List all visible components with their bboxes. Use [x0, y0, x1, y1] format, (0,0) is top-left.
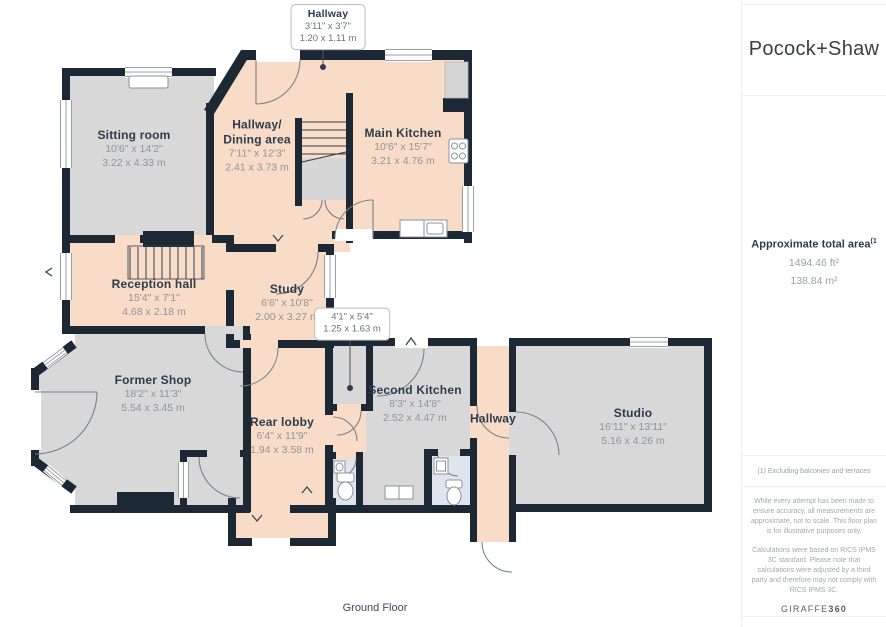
area-footnote: (1) Excluding balconies and terraces	[742, 455, 886, 487]
arrow-left-icon	[46, 268, 52, 276]
sitting-room-floor	[68, 74, 214, 238]
brand-logo-section: Pocock+Shaw	[742, 4, 886, 96]
stair-landing	[302, 158, 346, 200]
kitchen-sink-icon	[400, 220, 447, 237]
reception-hall-floor	[65, 238, 233, 334]
disclaimer-section: While every attempt has been made to ens…	[742, 487, 886, 617]
total-area-section: Approximate total area(1 1494.46 ft² 138…	[742, 238, 886, 287]
total-area-title: Approximate total area(1	[742, 238, 886, 251]
floorplan-area: Sitting room 10'6" x 14'2" 3.22 x 4.33 m…	[0, 0, 740, 627]
info-sidebar: Pocock+Shaw Approximate total area(1 149…	[741, 0, 886, 627]
toilet-icon	[446, 480, 462, 505]
window-seat	[129, 76, 168, 88]
disclaimer-text-2: Calculations were based on RICS IPMS 3C …	[750, 546, 878, 597]
leader-dot	[347, 385, 353, 391]
studio-floor	[516, 346, 705, 505]
total-area-sqm: 138.84 m²	[742, 275, 886, 287]
toilet-icon	[337, 473, 354, 500]
hob-icon	[449, 139, 468, 163]
footnote-marker: (1	[870, 238, 876, 245]
sink-icon	[334, 461, 345, 473]
disclaimer-text-1: While every attempt has been made to ens…	[750, 497, 878, 538]
hallway-strip-floor	[477, 346, 509, 542]
callout-hallway: Hallway 3'11" x 3'7" 1.20 x 1.11 m	[291, 4, 366, 50]
kitchen-counter	[445, 62, 468, 98]
giraffe360-credit: GIRAFFE360	[750, 604, 878, 614]
callout-small-room: 4'1" x 5'4" 1.25 x 1.63 m	[314, 308, 390, 341]
floors	[35, 56, 705, 542]
brand-logo: Pocock+Shaw	[749, 38, 880, 61]
second-kitchen-unit	[385, 486, 413, 499]
leader-dot	[320, 64, 326, 70]
sink-icon	[434, 458, 448, 474]
floorplan-page: Sitting room 10'6" x 14'2" 3.22 x 4.33 m…	[0, 0, 886, 627]
total-area-sqft: 1494.46 ft²	[742, 257, 886, 269]
rear-lobby-floor	[250, 347, 332, 512]
floor-label: Ground Floor	[343, 602, 408, 614]
